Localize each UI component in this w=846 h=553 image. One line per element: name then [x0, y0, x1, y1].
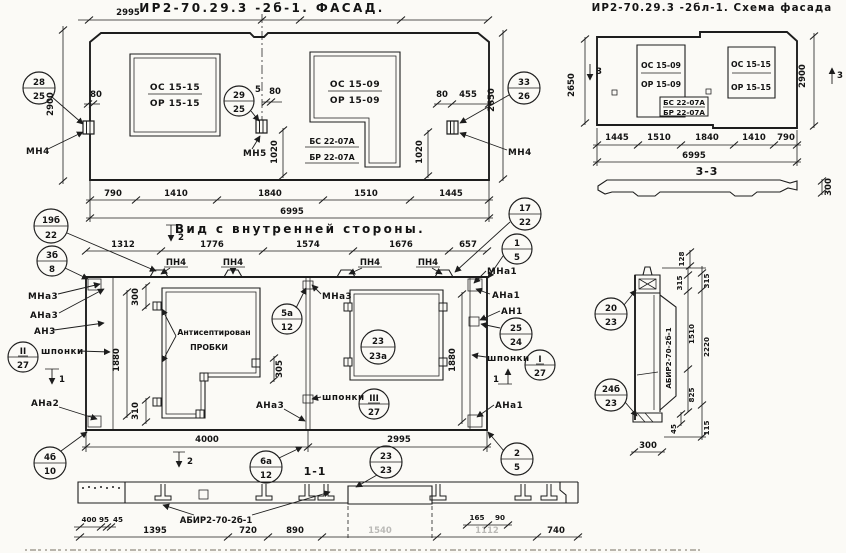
svg-text:6а: 6а	[260, 457, 272, 467]
svg-text:5а: 5а	[281, 309, 293, 319]
svg-text:165: 165	[469, 513, 484, 522]
svg-text:23: 23	[372, 337, 384, 347]
svg-text:45: 45	[113, 515, 123, 524]
scheme-beam-box: БС 22-07А БР 22-07А	[660, 97, 708, 117]
dim-1020: 1020	[415, 140, 425, 164]
dim-2995: 2995	[116, 8, 140, 18]
svg-text:23: 23	[605, 318, 617, 328]
svg-text:ОР 15-09: ОР 15-09	[641, 80, 681, 89]
interior-title: Вид с внутренней стороны.	[175, 222, 425, 236]
svg-text:29: 29	[233, 91, 245, 101]
svg-text:1676: 1676	[389, 240, 413, 250]
svg-text:45: 45	[669, 424, 678, 434]
section-1-1: 6а 12 1-1 23 23 А	[74, 446, 582, 541]
window-mark: ОС 15-09	[330, 80, 380, 90]
antiseptic-label: Антисептирован	[177, 328, 250, 337]
section-3-3-profile: 300	[598, 178, 834, 197]
panel-mark-label: АБИР2-70-2б-1	[180, 515, 253, 526]
dim-2650: 2650	[487, 88, 497, 112]
callout-20-23: 20 23	[595, 290, 636, 330]
panel-mark-vertical: АБИР2-70-2б-1	[664, 327, 673, 388]
dim-305: 305	[275, 360, 285, 378]
svg-text:2: 2	[178, 233, 184, 243]
svg-text:27: 27	[368, 408, 380, 418]
callout-29-25: 29 25	[224, 86, 259, 121]
dim-310: 310	[131, 402, 141, 420]
interior-window-left: Антисептирован ПРОБКИ	[153, 288, 260, 418]
label-ana3: АНа3	[30, 311, 58, 321]
svg-text:26: 26	[518, 92, 530, 102]
svg-text:95: 95	[99, 515, 109, 524]
svg-text:890: 890	[286, 526, 304, 536]
dim-2900: 2900	[798, 64, 808, 88]
label-shponki: шпонки	[41, 347, 84, 357]
facade-bottom-dims: 790 1410 1840 1510 1445 6995	[86, 180, 493, 222]
label-mna1: МНа1	[487, 267, 517, 277]
label-shponki-right: шпонки	[487, 354, 530, 364]
svg-text:2: 2	[514, 449, 520, 459]
svg-text:2220: 2220	[702, 337, 711, 357]
label-ana1: АНа1	[492, 291, 520, 301]
svg-text:6995: 6995	[280, 207, 304, 217]
beam-mark: БС 22-07А	[309, 137, 354, 146]
svg-text:1510: 1510	[354, 189, 378, 199]
edge-anchor	[469, 317, 479, 326]
svg-text:315: 315	[675, 275, 684, 290]
svg-text:I: I	[538, 355, 541, 365]
dim-80: 80	[269, 87, 281, 97]
section-marker-1-right: 1	[493, 369, 512, 385]
svg-text:25: 25	[233, 105, 245, 115]
section-marker-3-right: 3	[832, 68, 843, 84]
facade-window-left: ОС 15-15 ОР 15-15	[130, 54, 220, 136]
dim-80: 80	[436, 90, 448, 100]
facade-height-dim-left: 2900	[46, 26, 67, 185]
interior-window-right	[344, 290, 447, 380]
callout-24b-23: 24б 23	[595, 379, 637, 416]
svg-text:27: 27	[534, 369, 546, 379]
callout-23-23a: 23 23а	[361, 330, 395, 364]
svg-text:ПН4: ПН4	[166, 258, 186, 268]
label-ana2: АНа2	[31, 399, 59, 409]
svg-text:790: 790	[104, 189, 122, 199]
svg-text:33: 33	[518, 78, 530, 88]
dim-455: 455	[459, 90, 477, 100]
section-2-2: АБИР2-70-2б-1 20 23 24б 23 128 315 1510 …	[595, 249, 711, 456]
dim-1880: 1880	[448, 348, 458, 372]
antiseptic-label: ПРОБКИ	[190, 343, 228, 352]
svg-text:12: 12	[260, 471, 272, 481]
label-ana3-mid: АНа3	[256, 401, 284, 411]
anchor-label-mn4: МН4	[508, 148, 532, 158]
svg-text:3: 3	[837, 71, 843, 81]
opening-band	[348, 486, 432, 504]
section-3-3-title: 3-3	[696, 165, 719, 178]
svg-text:1510: 1510	[647, 133, 671, 143]
dim-faded: 1540	[368, 526, 392, 536]
svg-text:3: 3	[596, 67, 602, 77]
svg-text:300: 300	[639, 441, 657, 451]
facade-title: ИР2-70.29.3 -2б-1. ФАСАД.	[139, 1, 385, 15]
svg-text:23: 23	[380, 466, 392, 476]
svg-text:17: 17	[519, 204, 531, 214]
beam-mark: БР 22-07А	[309, 153, 354, 162]
pn4-labels: ПН4 ПН4 ПН4 ПН4	[161, 258, 442, 274]
svg-text:3б: 3б	[46, 250, 58, 261]
interior-top-dims: 1312 1776 1574 1676 657	[82, 240, 491, 255]
svg-text:6995: 6995	[682, 151, 706, 161]
svg-text:25: 25	[33, 92, 45, 102]
label-an1: АН1	[501, 307, 523, 317]
section-marker-2-bottom: 2	[173, 452, 193, 467]
svg-text:22: 22	[45, 231, 57, 241]
svg-text:2: 2	[187, 457, 193, 467]
svg-text:5: 5	[514, 253, 520, 263]
svg-text:1510: 1510	[687, 324, 696, 344]
svg-text:1: 1	[514, 239, 520, 249]
callout-2-5: 2 5	[488, 432, 533, 475]
svg-text:1: 1	[59, 375, 65, 385]
svg-text:740: 740	[547, 526, 565, 536]
callout-5a-12: 5а 12	[272, 288, 306, 334]
svg-text:БР 22-07А: БР 22-07А	[663, 108, 705, 117]
section-1-1-title: 1-1	[304, 465, 327, 478]
callout-I-27: I 27	[525, 350, 555, 380]
svg-text:ПН4: ПН4	[223, 258, 243, 268]
svg-text:790: 790	[777, 133, 795, 143]
dim-80: 80	[90, 90, 102, 100]
label-mna3: МНа3	[28, 292, 58, 302]
label-an3: АН3	[34, 327, 56, 337]
svg-text:4б: 4б	[44, 452, 56, 463]
window-mark: ОС 15-15	[150, 83, 200, 93]
callout-3b-8: 3б 8	[37, 246, 88, 279]
svg-text:5: 5	[514, 463, 520, 473]
svg-text:20: 20	[605, 304, 617, 314]
dim-faded: 1112	[475, 526, 499, 536]
dim-1020: 1020	[270, 140, 280, 164]
svg-text:657: 657	[459, 240, 477, 250]
scheme-bottom-dims: 1445 1510 1840 1410 790 6995	[593, 128, 801, 166]
interior-bottom-dims: 4000 2995	[82, 430, 491, 452]
svg-text:28: 28	[33, 78, 45, 88]
svg-text:22: 22	[519, 218, 531, 228]
dim-1880: 1880	[112, 348, 122, 372]
svg-text:4000: 4000	[195, 435, 219, 445]
label-mna3-mid: МНа3	[322, 292, 352, 302]
anchor-mn5	[256, 120, 267, 133]
rebar-dots	[82, 486, 120, 489]
svg-text:ОР 15-15: ОР 15-15	[731, 83, 771, 92]
joint-key	[303, 281, 313, 289]
anchor-label-mn4: МН4	[26, 147, 50, 157]
dim-300: 300	[824, 178, 834, 196]
anchor-mn4-right	[447, 121, 458, 134]
window-mark: ОР 15-09	[330, 96, 380, 106]
svg-text:1840: 1840	[695, 133, 719, 143]
svg-text:23: 23	[605, 399, 617, 409]
top-channel	[635, 275, 660, 293]
svg-text:1445: 1445	[439, 189, 463, 199]
dim-5: 5	[255, 85, 261, 95]
svg-text:ПН4: ПН4	[360, 258, 380, 268]
svg-text:1410: 1410	[164, 189, 188, 199]
dims-1-1-main: 1395 720 890 1540 1112 740	[74, 526, 582, 541]
svg-text:90: 90	[495, 513, 505, 522]
facade-view: ИР2-70.29.3 -2б-1. ФАСАД. 2995 ОС 15-15 …	[23, 1, 540, 222]
interior-view: Вид с внутренней стороны. 2 1312 1776 15…	[8, 198, 555, 479]
svg-text:1776: 1776	[200, 240, 224, 250]
svg-text:400: 400	[81, 515, 96, 524]
svg-text:II: II	[20, 347, 26, 357]
callout-25-24: 25 24	[481, 318, 532, 350]
anchor-dot	[612, 90, 617, 95]
svg-text:2995: 2995	[387, 435, 411, 445]
svg-text:III: III	[369, 394, 379, 404]
scheme-title: ИР2-70.29.3 -2бл-1. Схема фасада	[592, 2, 833, 14]
callout-III-27: III 27	[359, 389, 389, 419]
svg-text:1395: 1395	[143, 526, 167, 536]
svg-text:19б: 19б	[42, 215, 60, 226]
svg-text:128: 128	[677, 251, 686, 266]
callout-23-23: 23 23	[356, 446, 402, 487]
svg-text:8: 8	[49, 265, 55, 275]
svg-text:12: 12	[281, 323, 293, 333]
scheme-window-right: ОС 15-15 ОР 15-15	[728, 47, 775, 98]
anchor-dot	[706, 89, 711, 94]
window-mark: ОР 15-15	[150, 99, 200, 109]
facade-scheme: ИР2-70.29.3 -2бл-1. Схема фасада ОС 15-0…	[567, 2, 843, 197]
section-marker-3-left: 3	[590, 64, 602, 80]
blueprint-canvas: ИР2-70.29.3 -2б-1. ФАСАД. 2995 ОС 15-15 …	[0, 0, 846, 553]
corner-tab	[88, 416, 101, 427]
svg-text:115: 115	[702, 420, 711, 435]
callout-6a-12: 6а 12	[250, 447, 302, 483]
top-edge-tabs	[150, 270, 453, 277]
svg-text:27: 27	[17, 361, 29, 371]
svg-text:720: 720	[239, 526, 257, 536]
anchor-label-mn5: МН5	[243, 149, 267, 159]
facade-window-right: ОС 15-09 ОР 15-09 БС 22-07А БР 22-07А	[305, 52, 400, 167]
dim-2900: 2900	[46, 92, 56, 116]
svg-text:23а: 23а	[369, 352, 387, 362]
svg-text:1574: 1574	[296, 240, 320, 250]
svg-text:24б: 24б	[602, 384, 620, 395]
svg-text:315: 315	[702, 273, 711, 288]
svg-text:БС 22-07А: БС 22-07А	[663, 98, 705, 107]
svg-text:1445: 1445	[605, 133, 629, 143]
svg-text:1840: 1840	[258, 189, 282, 199]
svg-text:1312: 1312	[111, 240, 135, 250]
dim-300: 300	[131, 288, 141, 306]
joint-key	[303, 395, 313, 403]
callout-II-27: II 27	[8, 342, 38, 372]
svg-text:24: 24	[510, 338, 522, 348]
callout-17-22: 17 22	[455, 198, 541, 272]
section-marker-1-left: 1	[45, 369, 65, 385]
label-shponki-mid: шпонки	[322, 393, 365, 403]
svg-text:10: 10	[44, 467, 56, 477]
svg-text:23: 23	[380, 452, 392, 462]
svg-text:ОС 15-15: ОС 15-15	[731, 60, 771, 69]
anchor-mn4-left	[83, 121, 94, 134]
svg-text:25: 25	[510, 324, 522, 334]
svg-text:825: 825	[687, 387, 696, 402]
svg-text:1: 1	[493, 375, 499, 385]
dims-1-1-left: 400 95 45	[74, 515, 123, 531]
svg-text:ОС 15-09: ОС 15-09	[641, 61, 681, 70]
lifting-loop	[643, 267, 652, 275]
dim-2650: 2650	[567, 73, 577, 97]
svg-text:ПН4: ПН4	[418, 258, 438, 268]
svg-text:1410: 1410	[742, 133, 766, 143]
callout-4b-10: 4б 10	[34, 432, 87, 479]
label-ana1-low: АНа1	[495, 401, 523, 411]
